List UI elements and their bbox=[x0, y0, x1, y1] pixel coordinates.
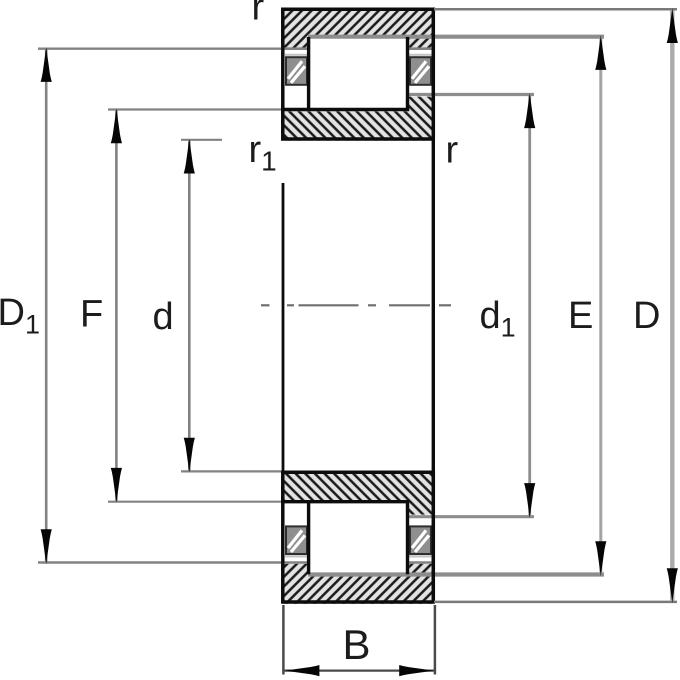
svg-text:D: D bbox=[633, 295, 660, 337]
svg-text:F: F bbox=[80, 294, 103, 336]
svg-text:r: r bbox=[446, 129, 459, 171]
svg-text:B: B bbox=[343, 621, 371, 668]
svg-text:d: d bbox=[153, 296, 174, 338]
svg-text:E: E bbox=[568, 295, 593, 337]
svg-text:r: r bbox=[252, 0, 265, 29]
